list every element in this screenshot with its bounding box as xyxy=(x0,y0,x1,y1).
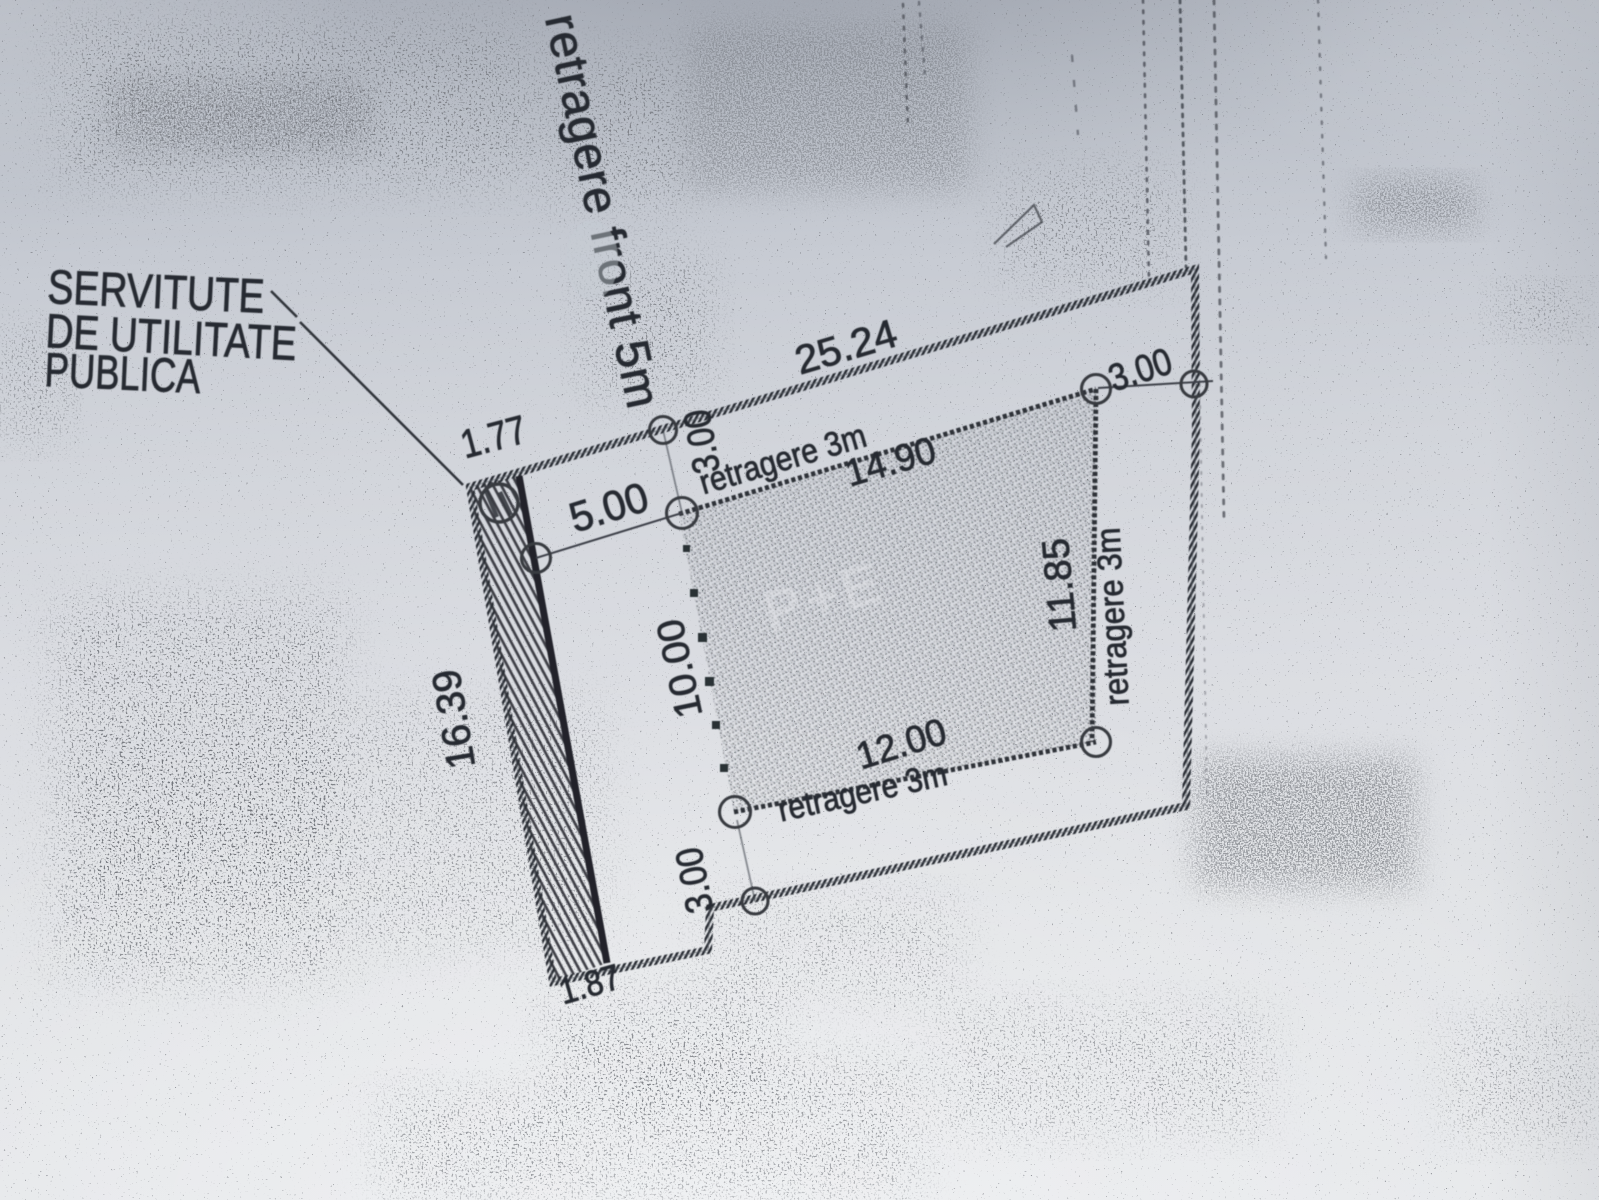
svg-text:PUBLICA: PUBLICA xyxy=(44,344,202,404)
svg-text:11.85: 11.85 xyxy=(1035,536,1085,633)
